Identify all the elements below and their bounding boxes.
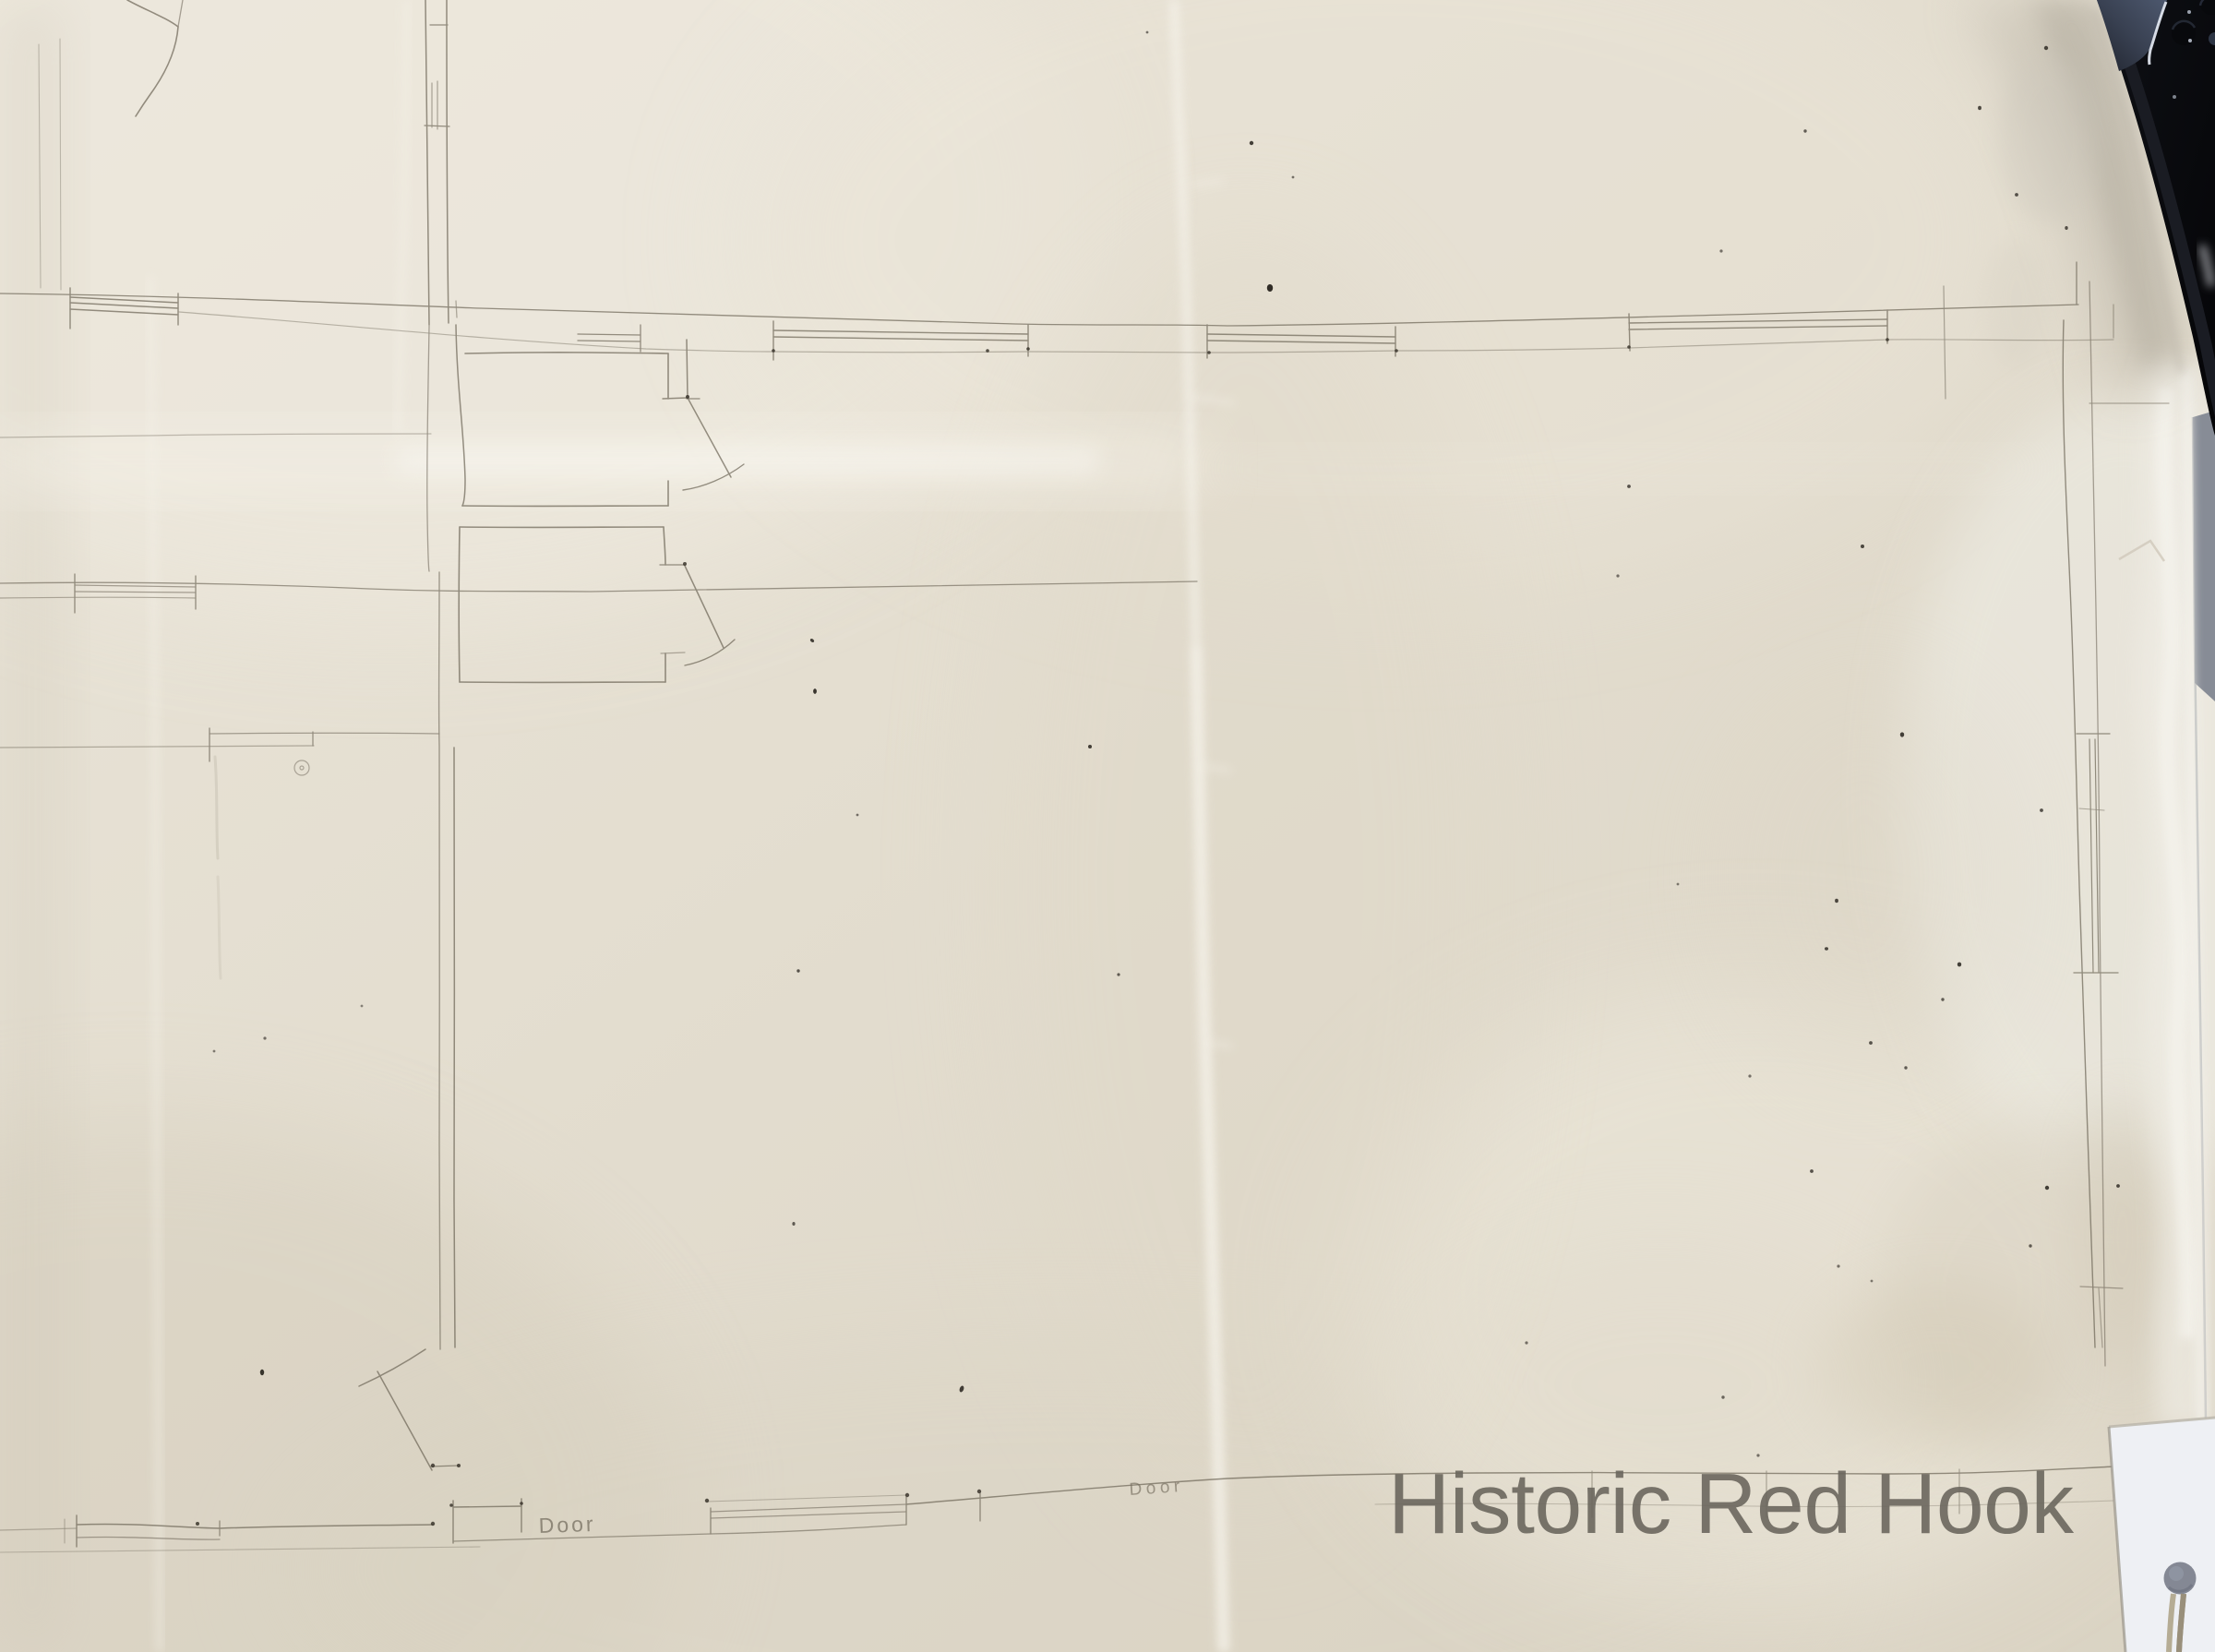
svg-text:Historic Red Hook: Historic Red Hook — [1388, 1455, 2075, 1551]
svg-text:Door: Door — [1129, 1477, 1185, 1500]
svg-text:Door: Door — [538, 1512, 596, 1538]
